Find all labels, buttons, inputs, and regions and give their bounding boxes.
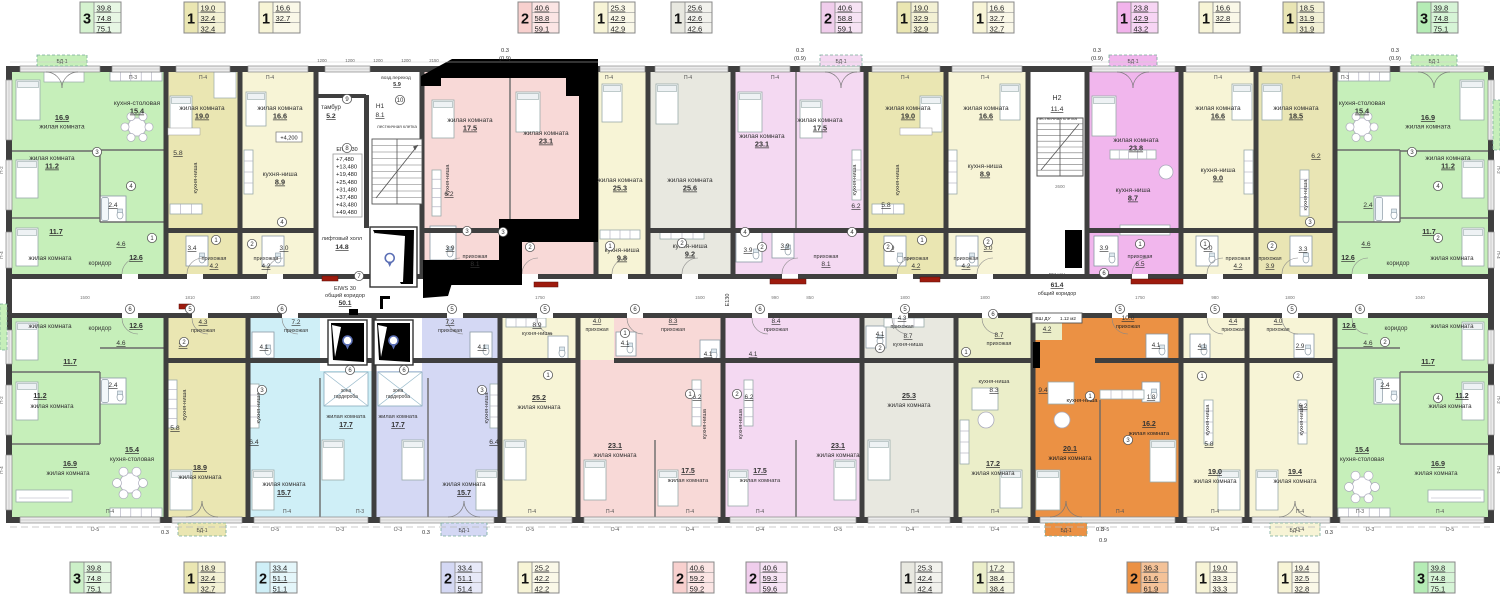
svg-text:4.2: 4.2 bbox=[1043, 326, 1052, 333]
svg-text:П-4: П-4 bbox=[266, 75, 274, 81]
svg-text:23.8: 23.8 bbox=[1134, 4, 1149, 13]
svg-text:прихожая: прихожая bbox=[1258, 256, 1281, 262]
svg-text:П-4: П-4 bbox=[106, 509, 114, 515]
svg-text:11.2: 11.2 bbox=[1441, 162, 1455, 171]
svg-text:1.12 м2: 1.12 м2 bbox=[1060, 316, 1076, 321]
svg-text:17.7: 17.7 bbox=[339, 422, 353, 429]
svg-text:3.4: 3.4 bbox=[188, 245, 197, 252]
svg-text:жилая комната: жилая комната bbox=[178, 474, 222, 481]
svg-text:32.4: 32.4 bbox=[201, 574, 216, 583]
svg-text:прихожая: прихожая bbox=[954, 256, 979, 262]
svg-text:32.9: 32.9 bbox=[914, 14, 929, 23]
svg-text:жилая комната: жилая комната bbox=[327, 414, 367, 420]
svg-text:4.2: 4.2 bbox=[962, 263, 971, 270]
svg-text:жилая комната: жилая комната bbox=[1405, 124, 1451, 131]
svg-text:БД-1: БД-1 bbox=[1060, 528, 1071, 534]
svg-text:8.3: 8.3 bbox=[989, 387, 998, 394]
svg-text:8.4: 8.4 bbox=[772, 318, 781, 325]
svg-text:75.1: 75.1 bbox=[97, 24, 112, 33]
svg-text:5.9: 5.9 bbox=[393, 82, 401, 88]
svg-text:прихожая: прихожая bbox=[987, 341, 1012, 347]
svg-text:кухня-ниша: кухня-ниша bbox=[193, 162, 199, 194]
svg-text:3.9: 3.9 bbox=[446, 245, 455, 252]
svg-text:П-4: П-4 bbox=[283, 509, 291, 515]
svg-text:коридор: коридор bbox=[1385, 326, 1409, 332]
svg-text:прихожая: прихожая bbox=[284, 328, 308, 334]
svg-text:8.7: 8.7 bbox=[995, 332, 1004, 339]
svg-text:2: 2 bbox=[824, 12, 832, 28]
svg-text:3.9: 3.9 bbox=[781, 243, 790, 250]
svg-text:5.8: 5.8 bbox=[1204, 441, 1213, 448]
svg-text:5.8: 5.8 bbox=[170, 425, 180, 432]
svg-text:42.6: 42.6 bbox=[688, 14, 703, 23]
svg-text:2: 2 bbox=[676, 572, 684, 588]
svg-text:42.9: 42.9 bbox=[611, 24, 626, 33]
svg-text:0.3: 0.3 bbox=[1391, 48, 1399, 54]
svg-text:16.6: 16.6 bbox=[276, 4, 291, 13]
svg-text:кухня-ниша: кухня-ниша bbox=[182, 389, 188, 421]
svg-text:32.5: 32.5 bbox=[1295, 574, 1310, 583]
svg-text:36.3: 36.3 bbox=[1144, 564, 1159, 573]
svg-text:4.1: 4.1 bbox=[704, 351, 713, 358]
svg-text:П-4: П-4 bbox=[605, 75, 613, 81]
svg-text:1: 1 bbox=[187, 572, 195, 588]
svg-text:1750: 1750 bbox=[535, 295, 545, 300]
svg-text:59.1: 59.1 bbox=[838, 24, 853, 33]
svg-text:74.8: 74.8 bbox=[1431, 574, 1446, 583]
svg-text:П-4: П-4 bbox=[686, 509, 694, 515]
svg-text:прихожая: прихожая bbox=[463, 254, 488, 260]
svg-text:+19,480: +19,480 bbox=[336, 172, 357, 178]
svg-text:9.2: 9.2 bbox=[685, 250, 695, 259]
svg-text:3.0: 3.0 bbox=[280, 245, 289, 252]
svg-text:1.8: 1.8 bbox=[1147, 395, 1156, 401]
svg-text:+25,480: +25,480 bbox=[336, 180, 357, 186]
svg-text:+13,480: +13,480 bbox=[336, 165, 357, 171]
svg-text:17.5: 17.5 bbox=[681, 468, 695, 475]
svg-text:23.1: 23.1 bbox=[608, 441, 622, 450]
svg-text:74.8: 74.8 bbox=[97, 14, 112, 23]
svg-text:16.6: 16.6 bbox=[273, 112, 287, 121]
svg-text:П-4: П-4 bbox=[756, 509, 764, 515]
svg-text:3: 3 bbox=[1417, 572, 1425, 588]
svg-text:75.1: 75.1 bbox=[1434, 24, 1449, 33]
svg-text:39.8: 39.8 bbox=[87, 564, 102, 573]
svg-text:1: 1 bbox=[1202, 12, 1210, 28]
svg-text:кухня-ниша: кухня-ниша bbox=[852, 164, 858, 196]
svg-text:42.2: 42.2 bbox=[535, 574, 550, 583]
svg-text:8.9: 8.9 bbox=[275, 178, 285, 187]
svg-text:33.3: 33.3 bbox=[1213, 574, 1228, 583]
svg-text:жилая комната: жилая комната bbox=[28, 323, 72, 330]
svg-text:общий коридор: общий коридор bbox=[325, 292, 365, 299]
svg-text:16.2: 16.2 bbox=[1142, 421, 1156, 428]
svg-text:11.7: 11.7 bbox=[1421, 357, 1435, 366]
svg-text:25.2: 25.2 bbox=[532, 393, 546, 402]
svg-text:прихожая: прихожая bbox=[814, 254, 839, 260]
svg-text:П-4: П-4 bbox=[1496, 466, 1500, 474]
svg-text:25.3: 25.3 bbox=[613, 184, 627, 193]
svg-text:6.5: 6.5 bbox=[1135, 261, 1144, 268]
svg-text:прихожая: прихожая bbox=[890, 324, 913, 330]
svg-text:прихожая: прихожая bbox=[1116, 324, 1140, 330]
svg-text:О-5: О-5 bbox=[834, 527, 843, 533]
svg-text:1: 1 bbox=[597, 12, 605, 28]
svg-text:тамбур: тамбур bbox=[321, 105, 341, 111]
svg-text:4.2: 4.2 bbox=[210, 263, 219, 270]
svg-text:прихожая: прихожая bbox=[438, 328, 462, 334]
svg-text:1: 1 bbox=[976, 12, 984, 28]
svg-text:2.9: 2.9 bbox=[1296, 343, 1305, 350]
svg-text:кухня-ниша: кухня-ниша bbox=[979, 379, 1011, 385]
svg-text:59.1: 59.1 bbox=[535, 24, 550, 33]
svg-text:17.2: 17.2 bbox=[986, 459, 1000, 468]
svg-text:40.6: 40.6 bbox=[838, 4, 853, 13]
svg-text:кухня-ниша: кухня-ниша bbox=[1205, 404, 1211, 436]
svg-text:(0.9): (0.9) bbox=[1091, 56, 1103, 62]
svg-text:75.1: 75.1 bbox=[87, 584, 102, 593]
svg-text:1800: 1800 bbox=[250, 295, 260, 300]
svg-text:коридор: коридор bbox=[89, 261, 113, 267]
svg-text:2.4: 2.4 bbox=[1380, 382, 1389, 389]
svg-text:61.6: 61.6 bbox=[1144, 574, 1159, 583]
svg-text:1500: 1500 bbox=[695, 295, 705, 300]
svg-text:50.1: 50.1 bbox=[339, 300, 352, 307]
svg-text:980: 980 bbox=[1211, 295, 1219, 300]
svg-text:16.6: 16.6 bbox=[990, 4, 1005, 13]
svg-text:жилая комната: жилая комната bbox=[379, 414, 419, 420]
svg-text:33.4: 33.4 bbox=[273, 564, 288, 573]
svg-text:+37,480: +37,480 bbox=[336, 195, 357, 201]
svg-text:4.0: 4.0 bbox=[593, 318, 602, 325]
svg-text:О-5: О-5 bbox=[1446, 527, 1455, 533]
svg-text:39.8: 39.8 bbox=[97, 4, 112, 13]
svg-text:23.8: 23.8 bbox=[1129, 144, 1143, 153]
svg-text:жилая комната: жилая комната bbox=[1414, 470, 1458, 477]
svg-text:П-4: П-4 bbox=[911, 509, 919, 515]
svg-text:17.5: 17.5 bbox=[463, 124, 477, 133]
svg-text:8.7: 8.7 bbox=[904, 333, 913, 340]
svg-text:15.4: 15.4 bbox=[125, 445, 139, 454]
svg-text:6.2: 6.2 bbox=[1311, 153, 1321, 160]
svg-text:кухня-ниша: кухня-ниша bbox=[1303, 179, 1309, 211]
svg-text:2150: 2150 bbox=[429, 58, 439, 63]
svg-text:О-4: О-4 bbox=[1296, 527, 1305, 533]
svg-text:25.2: 25.2 bbox=[535, 564, 550, 573]
svg-text:11.7: 11.7 bbox=[49, 227, 63, 236]
svg-text:5.2: 5.2 bbox=[326, 113, 336, 120]
svg-text:3.9: 3.9 bbox=[1266, 263, 1275, 270]
svg-text:8.7: 8.7 bbox=[1128, 194, 1138, 203]
svg-text:4.1: 4.1 bbox=[749, 351, 758, 358]
svg-text:1: 1 bbox=[976, 572, 984, 588]
svg-text:31.9: 31.9 bbox=[1300, 14, 1315, 23]
svg-text:+43,480: +43,480 bbox=[336, 203, 357, 209]
svg-text:П-4: П-4 bbox=[1496, 251, 1500, 259]
svg-text:1800: 1800 bbox=[1285, 295, 1295, 300]
svg-text:О-5: О-5 bbox=[91, 527, 100, 533]
svg-text:0.3: 0.3 bbox=[1093, 48, 1101, 54]
svg-text:20.1: 20.1 bbox=[1063, 444, 1077, 453]
svg-text:42.9: 42.9 bbox=[611, 14, 626, 23]
svg-text:1810: 1810 bbox=[185, 295, 195, 300]
svg-text:2600: 2600 bbox=[1055, 184, 1065, 189]
svg-text:О-5: О-5 bbox=[271, 527, 280, 533]
svg-text:38.4: 38.4 bbox=[990, 584, 1005, 593]
svg-text:П-4: П-4 bbox=[771, 75, 779, 81]
svg-text:1: 1 bbox=[521, 572, 529, 588]
svg-text:16.9: 16.9 bbox=[1421, 113, 1435, 122]
svg-text:жилая комната: жилая комната bbox=[971, 470, 1015, 477]
svg-text:32.7: 32.7 bbox=[990, 24, 1005, 33]
svg-text:9.4: 9.4 bbox=[1038, 387, 1047, 394]
svg-text:23.1: 23.1 bbox=[539, 137, 553, 146]
svg-text:О-4: О-4 bbox=[906, 527, 915, 533]
svg-text:1: 1 bbox=[1286, 12, 1294, 28]
svg-text:П-4: П-4 bbox=[1211, 509, 1219, 515]
svg-text:74.8: 74.8 bbox=[87, 574, 102, 583]
svg-text:+7,480: +7,480 bbox=[336, 157, 354, 163]
svg-text:4.2: 4.2 bbox=[1234, 263, 1243, 270]
svg-text:32.4: 32.4 bbox=[201, 24, 216, 33]
svg-text:жилая комната: жилая комната bbox=[30, 403, 74, 410]
svg-text:1: 1 bbox=[904, 572, 912, 588]
svg-text:16.9: 16.9 bbox=[63, 459, 77, 468]
svg-text:П-3: П-3 bbox=[129, 75, 137, 81]
svg-text:Е130: Е130 bbox=[725, 294, 731, 307]
svg-text:58.8: 58.8 bbox=[535, 14, 550, 23]
svg-text:4.2: 4.2 bbox=[912, 263, 921, 270]
svg-text:прихожая: прихожая bbox=[585, 327, 608, 333]
svg-text:0.3: 0.3 bbox=[796, 48, 804, 54]
svg-text:(0.9): (0.9) bbox=[1389, 56, 1401, 62]
svg-text:О-4: О-4 bbox=[756, 527, 765, 533]
svg-text:1200: 1200 bbox=[317, 58, 327, 63]
svg-text:25.6: 25.6 bbox=[683, 184, 697, 193]
svg-text:23.1: 23.1 bbox=[831, 441, 845, 450]
svg-text:32.4: 32.4 bbox=[201, 14, 216, 23]
svg-text:EIWS 30: EIWS 30 bbox=[334, 286, 356, 292]
svg-text:19.0: 19.0 bbox=[201, 4, 216, 13]
svg-text:16.9: 16.9 bbox=[1431, 459, 1445, 468]
svg-text:2: 2 bbox=[444, 572, 452, 588]
svg-text:П-4: П-4 bbox=[606, 509, 614, 515]
svg-text:кухня-столовая: кухня-столовая bbox=[1340, 456, 1384, 463]
svg-text:11.2: 11.2 bbox=[33, 393, 46, 400]
svg-text:9.8: 9.8 bbox=[617, 254, 627, 263]
svg-text:16.6: 16.6 bbox=[1211, 112, 1225, 121]
svg-text:1800: 1800 bbox=[900, 295, 910, 300]
svg-text:8.9: 8.9 bbox=[532, 322, 541, 329]
svg-text:кухня-ниша: кухня-ниша bbox=[738, 408, 744, 439]
svg-text:4.6: 4.6 bbox=[116, 340, 125, 347]
svg-text:12.6: 12.6 bbox=[129, 255, 143, 262]
svg-text:32.7: 32.7 bbox=[276, 14, 291, 23]
svg-text:12.6: 12.6 bbox=[1342, 323, 1356, 330]
svg-text:гардероба: гардероба bbox=[334, 394, 358, 400]
svg-text:жилая комната: жилая комната bbox=[668, 478, 709, 484]
svg-text:4.3: 4.3 bbox=[199, 319, 208, 326]
svg-text:ВШ ДУ: ВШ ДУ bbox=[1035, 316, 1051, 322]
svg-text:жилая комната: жилая комната bbox=[887, 402, 931, 409]
svg-text:О-4: О-4 bbox=[991, 527, 1000, 533]
svg-text:кухня-ниша: кухня-ниша bbox=[895, 164, 901, 196]
svg-text:кухня-ниша: кухня-ниша bbox=[484, 392, 490, 424]
svg-text:П-4: П-4 bbox=[1292, 75, 1300, 81]
svg-text:6.4: 6.4 bbox=[249, 439, 259, 446]
svg-text:40.6: 40.6 bbox=[763, 564, 778, 573]
svg-text:33.3: 33.3 bbox=[1213, 584, 1228, 593]
svg-text:14.8: 14.8 bbox=[335, 244, 348, 251]
svg-text:4.6: 4.6 bbox=[116, 241, 125, 248]
svg-text:23.1: 23.1 bbox=[755, 140, 769, 149]
svg-text:10.0: 10.0 bbox=[1122, 315, 1135, 322]
svg-text:П-4: П-4 bbox=[991, 509, 999, 515]
svg-text:коридор: коридор bbox=[1387, 261, 1411, 267]
svg-text:П-3: П-3 bbox=[356, 509, 364, 515]
svg-text:42.4: 42.4 bbox=[918, 574, 933, 583]
svg-text:1040: 1040 bbox=[1415, 295, 1425, 300]
svg-text:лестничная клетка: лестничная клетка bbox=[1037, 116, 1077, 121]
svg-text:25.3: 25.3 bbox=[611, 4, 626, 13]
svg-text:кухня-ниша: кухня-ниша bbox=[893, 342, 924, 348]
svg-text:1: 1 bbox=[1281, 572, 1289, 588]
svg-text:1200: 1200 bbox=[373, 58, 383, 63]
svg-text:0.9: 0.9 bbox=[1099, 538, 1107, 544]
svg-text:39.8: 39.8 bbox=[1431, 564, 1446, 573]
svg-text:О-3: О-3 bbox=[1366, 527, 1375, 533]
svg-text:19.4: 19.4 bbox=[1295, 564, 1310, 573]
svg-text:17.5: 17.5 bbox=[813, 124, 827, 133]
svg-text:4.1: 4.1 bbox=[260, 344, 269, 351]
svg-text:3.9: 3.9 bbox=[744, 247, 753, 254]
svg-text:4.3: 4.3 bbox=[898, 315, 907, 322]
svg-text:+31,480: +31,480 bbox=[336, 187, 357, 193]
svg-text:0.3: 0.3 bbox=[161, 530, 169, 536]
svg-text:П-2: П-2 bbox=[1496, 166, 1500, 174]
svg-text:25.6: 25.6 bbox=[688, 4, 703, 13]
svg-text:42.9: 42.9 bbox=[1134, 14, 1149, 23]
svg-text:19.4: 19.4 bbox=[1288, 467, 1302, 476]
svg-text:4.1: 4.1 bbox=[621, 340, 630, 347]
svg-text:+49,480: +49,480 bbox=[336, 210, 357, 216]
svg-text:59.6: 59.6 bbox=[763, 584, 778, 593]
svg-text:1500: 1500 bbox=[80, 295, 90, 300]
svg-text:19.0: 19.0 bbox=[1208, 467, 1222, 476]
svg-text:кухня-ниша: кухня-ниша bbox=[702, 408, 708, 439]
svg-text:40.6: 40.6 bbox=[690, 564, 705, 573]
svg-text:8.1: 8.1 bbox=[375, 112, 384, 119]
svg-text:16.6: 16.6 bbox=[979, 112, 993, 121]
svg-text:5.8: 5.8 bbox=[881, 202, 891, 209]
svg-text:+4,200: +4,200 bbox=[280, 136, 297, 142]
svg-text:59.2: 59.2 bbox=[690, 574, 705, 583]
svg-text:8.1: 8.1 bbox=[821, 261, 830, 268]
svg-text:П-4: П-4 bbox=[0, 466, 4, 474]
svg-text:4.6: 4.6 bbox=[1361, 241, 1370, 248]
svg-text:0.3: 0.3 bbox=[1325, 530, 1333, 536]
svg-text:прихожая: прихожая bbox=[1128, 254, 1153, 260]
svg-text:П-3: П-3 bbox=[1356, 509, 1364, 515]
svg-text:4.6: 4.6 bbox=[1363, 340, 1372, 347]
svg-text:О-4: О-4 bbox=[611, 527, 620, 533]
svg-text:1: 1 bbox=[187, 12, 195, 28]
svg-text:8.1: 8.1 bbox=[470, 261, 479, 268]
svg-text:8.3: 8.3 bbox=[669, 318, 678, 325]
svg-text:П-3: П-3 bbox=[1341, 75, 1349, 81]
svg-text:17.2: 17.2 bbox=[990, 564, 1005, 573]
svg-text:990: 990 bbox=[771, 295, 779, 300]
svg-text:прихожая: прихожая bbox=[254, 256, 279, 262]
svg-text:11.7: 11.7 bbox=[1422, 227, 1436, 236]
svg-text:гардероба: гардероба bbox=[386, 394, 410, 400]
svg-text:прихожая: прихожая bbox=[202, 256, 227, 262]
svg-text:61.9: 61.9 bbox=[1144, 584, 1159, 593]
svg-text:2: 2 bbox=[259, 572, 267, 588]
svg-text:6.4: 6.4 bbox=[489, 439, 499, 446]
svg-text:19.0: 19.0 bbox=[1213, 564, 1228, 573]
svg-text:16.9: 16.9 bbox=[55, 113, 69, 122]
svg-text:прихожая: прихожая bbox=[1221, 327, 1244, 333]
svg-text:18.5: 18.5 bbox=[1300, 4, 1315, 13]
svg-text:1: 1 bbox=[900, 12, 908, 28]
svg-text:12.6: 12.6 bbox=[129, 323, 143, 330]
svg-text:жилая комната: жилая комната bbox=[1129, 431, 1170, 437]
svg-text:жилая комната: жилая комната bbox=[593, 452, 637, 459]
svg-text:1200: 1200 bbox=[345, 58, 355, 63]
svg-text:4.2: 4.2 bbox=[262, 263, 271, 270]
svg-text:1750: 1750 bbox=[1135, 295, 1145, 300]
svg-text:прихожая: прихожая bbox=[191, 328, 215, 334]
svg-text:39.8: 39.8 bbox=[1434, 4, 1449, 13]
svg-text:850: 850 bbox=[806, 295, 814, 300]
svg-text:П-4: П-4 bbox=[981, 75, 989, 81]
svg-text:Н1: Н1 bbox=[376, 103, 385, 110]
svg-text:61.4: 61.4 bbox=[1051, 282, 1064, 289]
svg-text:15.7: 15.7 bbox=[277, 488, 291, 497]
svg-text:15.4: 15.4 bbox=[130, 107, 145, 116]
svg-text:11.4: 11.4 bbox=[1051, 106, 1064, 113]
svg-text:15.4: 15.4 bbox=[1355, 445, 1369, 454]
svg-text:П-4: П-4 bbox=[199, 75, 207, 81]
svg-text:БД-1: БД-1 bbox=[196, 528, 207, 534]
svg-text:19.0: 19.0 bbox=[914, 4, 929, 13]
svg-text:9.0: 9.0 bbox=[1213, 174, 1223, 183]
svg-text:кухня-ниша: кухня-ниша bbox=[256, 392, 262, 424]
svg-text:43.2: 43.2 bbox=[1134, 24, 1149, 33]
svg-text:15.4: 15.4 bbox=[1355, 107, 1370, 116]
svg-text:7.2: 7.2 bbox=[292, 319, 301, 326]
svg-text:П-2: П-2 bbox=[0, 166, 4, 174]
svg-text:18.9: 18.9 bbox=[193, 463, 207, 472]
svg-text:жилая комната: жилая комната bbox=[442, 481, 486, 488]
svg-text:жилая комната: жилая комната bbox=[1430, 255, 1474, 262]
svg-text:16.6: 16.6 bbox=[1216, 4, 1231, 13]
svg-text:П-4: П-4 bbox=[1214, 75, 1222, 81]
svg-text:18.9: 18.9 bbox=[201, 564, 216, 573]
svg-text:32.9: 32.9 bbox=[914, 24, 929, 33]
svg-text:1: 1 bbox=[674, 12, 682, 28]
svg-text:жилая комната: жилая комната bbox=[262, 481, 306, 488]
svg-text:лестничная клетка: лестничная клетка bbox=[377, 124, 417, 129]
svg-text:4.1: 4.1 bbox=[478, 344, 487, 351]
svg-text:возд.переход: возд.переход bbox=[381, 76, 411, 81]
svg-text:П-4: П-4 bbox=[1436, 509, 1444, 515]
svg-text:прихожая: прихожая bbox=[1266, 327, 1289, 333]
svg-text:11.2: 11.2 bbox=[45, 162, 59, 171]
svg-text:П-2: П-2 bbox=[1496, 396, 1500, 404]
svg-text:51.4: 51.4 bbox=[458, 584, 473, 593]
